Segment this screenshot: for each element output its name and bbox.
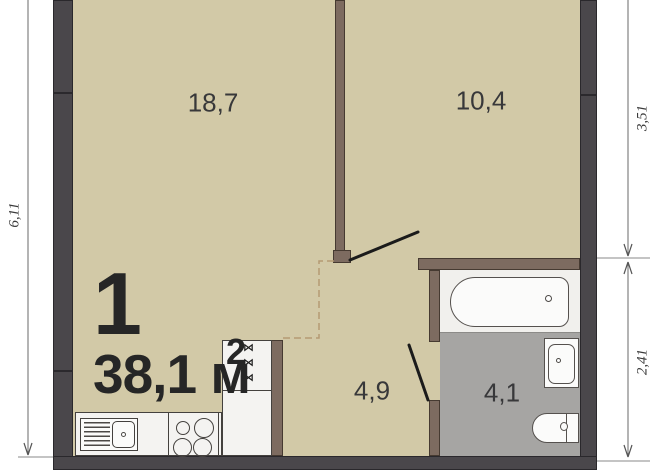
room-area-living: 18,7 (188, 88, 239, 119)
dimension-label-left: 6,11 (7, 202, 24, 227)
total-area-superscript: 2 (226, 334, 246, 370)
dimension-label-right-top: 3,51 (635, 105, 652, 131)
room-area-hallway: 4,9 (354, 376, 390, 407)
door-swing-bathroom (409, 345, 428, 400)
kitchen-zone-dashed-line (282, 261, 334, 338)
room-area-bedroom: 10,4 (456, 86, 507, 117)
floorplan-page: { "floorplan": { "unit": { "rooms_count"… (0, 0, 654, 470)
rooms-count-label: 1 (93, 260, 142, 348)
room-area-bathroom: 4,1 (484, 378, 520, 409)
dimension-label-right-bottom: 2,41 (635, 349, 652, 375)
door-swing-room (350, 232, 418, 260)
